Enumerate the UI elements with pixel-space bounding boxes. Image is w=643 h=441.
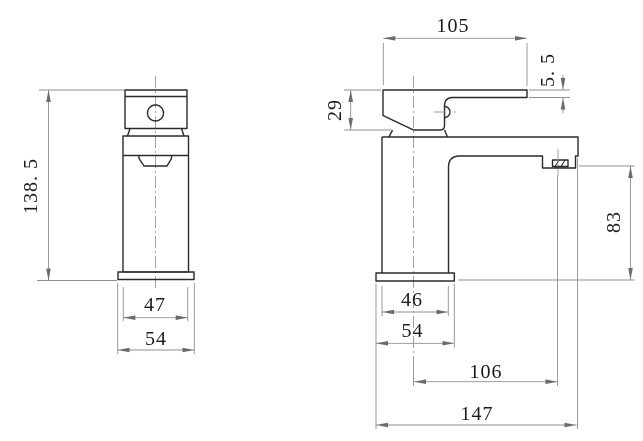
- side-base-flange: [376, 273, 454, 281]
- side-handle-lever: [383, 90, 527, 130]
- dim-text-spout-height: 83: [603, 211, 625, 233]
- technical-drawing-canvas: 138. 5 47 54 105 5. 5: [0, 0, 643, 441]
- dim-text-base-width: 54: [145, 328, 167, 350]
- front-view: [118, 76, 194, 290]
- dim-text-lever-thickness: 5. 5: [537, 53, 559, 87]
- front-base-flange: [118, 272, 194, 280]
- dim-text-handle-length: 105: [437, 15, 470, 37]
- dim-text-spout-reach: 106: [470, 361, 503, 383]
- dim-text-body-width: 47: [144, 294, 166, 316]
- side-view-dimensions: 105 5. 5 29 83 46 54 106: [324, 15, 635, 429]
- side-body-spout: [382, 137, 578, 273]
- dim-text-overall-depth: 147: [461, 403, 494, 425]
- side-view: [376, 76, 578, 360]
- aerator-insert: [553, 160, 569, 167]
- front-handle-cap: [125, 90, 187, 129]
- dim-text-base-depth: 54: [402, 320, 424, 342]
- faucet-dimension-drawing: 138. 5 47 54 105 5. 5: [0, 0, 643, 441]
- dim-text-total-height: 138. 5: [20, 158, 42, 214]
- dim-text-body-depth: 46: [401, 289, 423, 311]
- aerator-hatch: [555, 160, 565, 167]
- side-handle-neck: [389, 130, 448, 137]
- front-view-dimensions: 138. 5 47 54: [20, 90, 194, 354]
- dim-text-handle-height: 29: [324, 99, 346, 121]
